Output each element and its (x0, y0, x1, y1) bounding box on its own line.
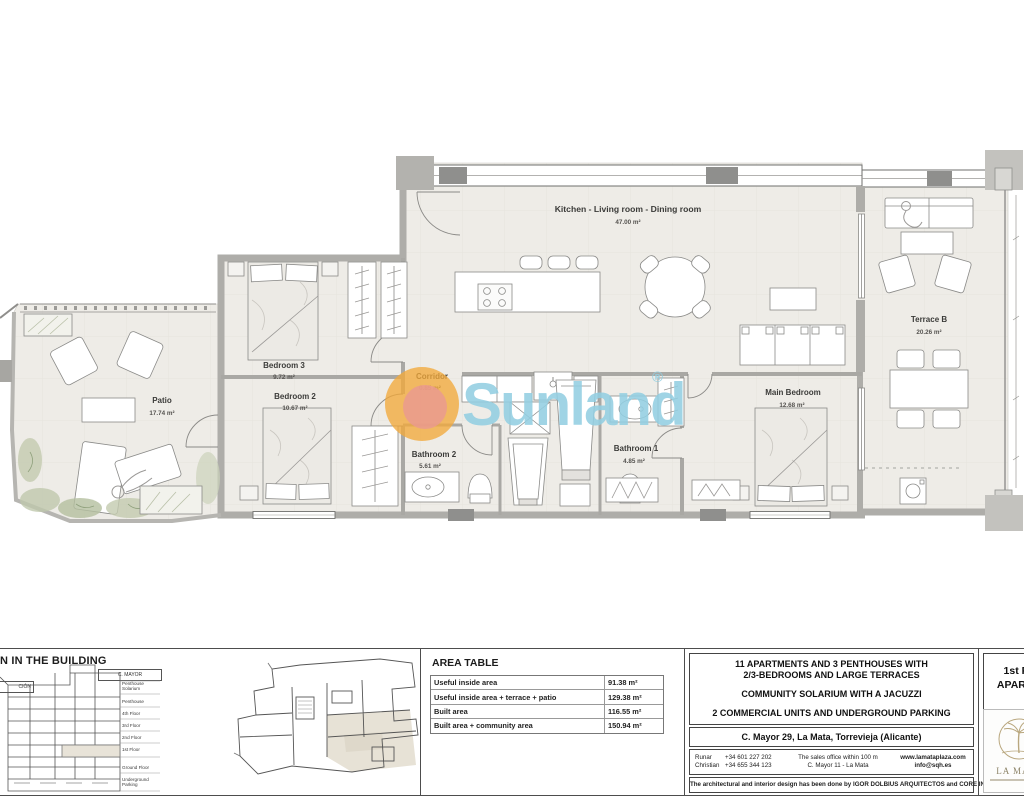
area-table: Useful inside area 91.38 m² Useful insid… (430, 675, 664, 734)
area-table-panel: AREA TABLE Useful inside area 91.38 m² U… (421, 649, 684, 795)
headline: COMMUNITY SOLARIUM WITH A JACUZZI (690, 689, 973, 700)
logo-wordmark: LA MATA (984, 766, 1024, 776)
floor-label: Underground Parking (122, 777, 162, 787)
bathroom1-label: Bathroom 1 (614, 444, 659, 453)
floor-label: 2nd Floor (122, 735, 162, 740)
table-row: Useful inside area + terrace + patio 129… (431, 689, 663, 703)
bedroom2-label: Bedroom 2 (274, 392, 316, 401)
logo-tagline-placeholder (990, 779, 1024, 781)
contact-box: Runar+34 601 227 202 Christian+34 655 34… (689, 749, 974, 775)
floor-plan-area: Kitchen - Living room - Dining room 47.0… (0, 0, 1024, 648)
headline: 2/3-BEDROOMS AND LARGE TERRACES (690, 670, 973, 681)
floor-label: 4th Floor (122, 711, 162, 716)
project-info-panel: 11 APARTMENTS AND 3 PENTHOUSES WITH 2/3-… (685, 649, 978, 795)
living-wardrobe (740, 325, 845, 365)
svg-text:20.26 m²: 20.26 m² (916, 329, 941, 336)
table-row: Built area 116.55 m² (431, 704, 663, 718)
page: Kitchen - Living room - Dining room 47.0… (0, 0, 1024, 800)
floor-label: Penthouse (122, 699, 162, 704)
sheet-id-box: 1st FL APARTM (983, 653, 1024, 717)
floor-label: 1st Floor (122, 747, 162, 752)
email-link[interactable]: info@sqh.es (893, 762, 973, 770)
bedroom3-label: Bedroom 3 (263, 361, 305, 370)
address-box: C. Mayor 29, La Mata, Torrevieja (Alican… (689, 727, 974, 747)
svg-text:47.00 m²: 47.00 m² (615, 219, 640, 226)
table-row: Built area + community area 150.94 m² (431, 718, 663, 732)
contact-phones: Runar+34 601 227 202 Christian+34 655 34… (690, 754, 783, 770)
svg-text:12.68 m²: 12.68 m² (779, 402, 804, 409)
key-plan-drawing (232, 657, 420, 791)
building-section-panel: N IN THE BUILDING C. MAYOR CIÓN Penthous… (0, 649, 420, 795)
bathroom2-fixtures (405, 472, 492, 503)
svg-text:17.74 m²: 17.74 m² (149, 410, 174, 417)
sheet-panel: 1st FL APARTM LA MATA (979, 649, 1024, 795)
title-block: N IN THE BUILDING C. MAYOR CIÓN Penthous… (0, 648, 1024, 796)
svg-text:10.67 m²: 10.67 m² (282, 405, 307, 412)
dimension-line (1013, 195, 1019, 488)
headline: 11 APARTMENTS AND 3 PENTHOUSES WITH (690, 659, 973, 670)
building-section-drawing (0, 663, 235, 793)
kitchen-label: Kitchen - Living room - Dining room (555, 204, 702, 214)
project-headlines: 11 APARTMENTS AND 3 PENTHOUSES WITH 2/3-… (689, 653, 974, 725)
address: C. Mayor 29, La Mata, Torrevieja (Alican… (690, 728, 973, 746)
lamata-logo: LA MATA (983, 709, 1024, 793)
floor-label: Ground Floor (122, 765, 162, 770)
sales-office-info: The sales office within 100 m C. Mayor 1… (783, 754, 893, 770)
area-table-title: AREA TABLE (432, 657, 499, 669)
floor-label: Penthouse Solarium (122, 681, 162, 691)
floor-plan: Kitchen - Living room - Dining room 47.0… (0, 0, 1024, 648)
floor-label: 3rd Floor (122, 723, 162, 728)
website-link[interactable]: www.lamataplaza.com (893, 754, 973, 762)
headline: 2 COMMERCIAL UNITS AND UNDERGROUND PARKI… (690, 708, 973, 719)
sunland-watermark: Sunland ® (385, 367, 685, 441)
bathroom2-label: Bathroom 2 (412, 450, 457, 459)
terrace-label: Terrace B (911, 315, 948, 324)
watermark-registered: ® (652, 369, 663, 386)
table-row: Useful inside area 91.38 m² (431, 676, 663, 689)
patio-label: Patio (152, 396, 172, 405)
svg-text:9.72 m²: 9.72 m² (273, 374, 295, 381)
svg-text:4.85 m²: 4.85 m² (623, 458, 645, 465)
main-bedroom-label: Main Bedroom (765, 388, 821, 397)
wardrobe (352, 426, 398, 506)
palm-tree-icon (988, 713, 1024, 765)
svg-text:5.61 m²: 5.61 m² (419, 463, 441, 470)
web-contact: www.lamataplaza.com info@sqh.es (893, 754, 973, 770)
credit-box: The architectural and interior design ha… (689, 777, 974, 793)
